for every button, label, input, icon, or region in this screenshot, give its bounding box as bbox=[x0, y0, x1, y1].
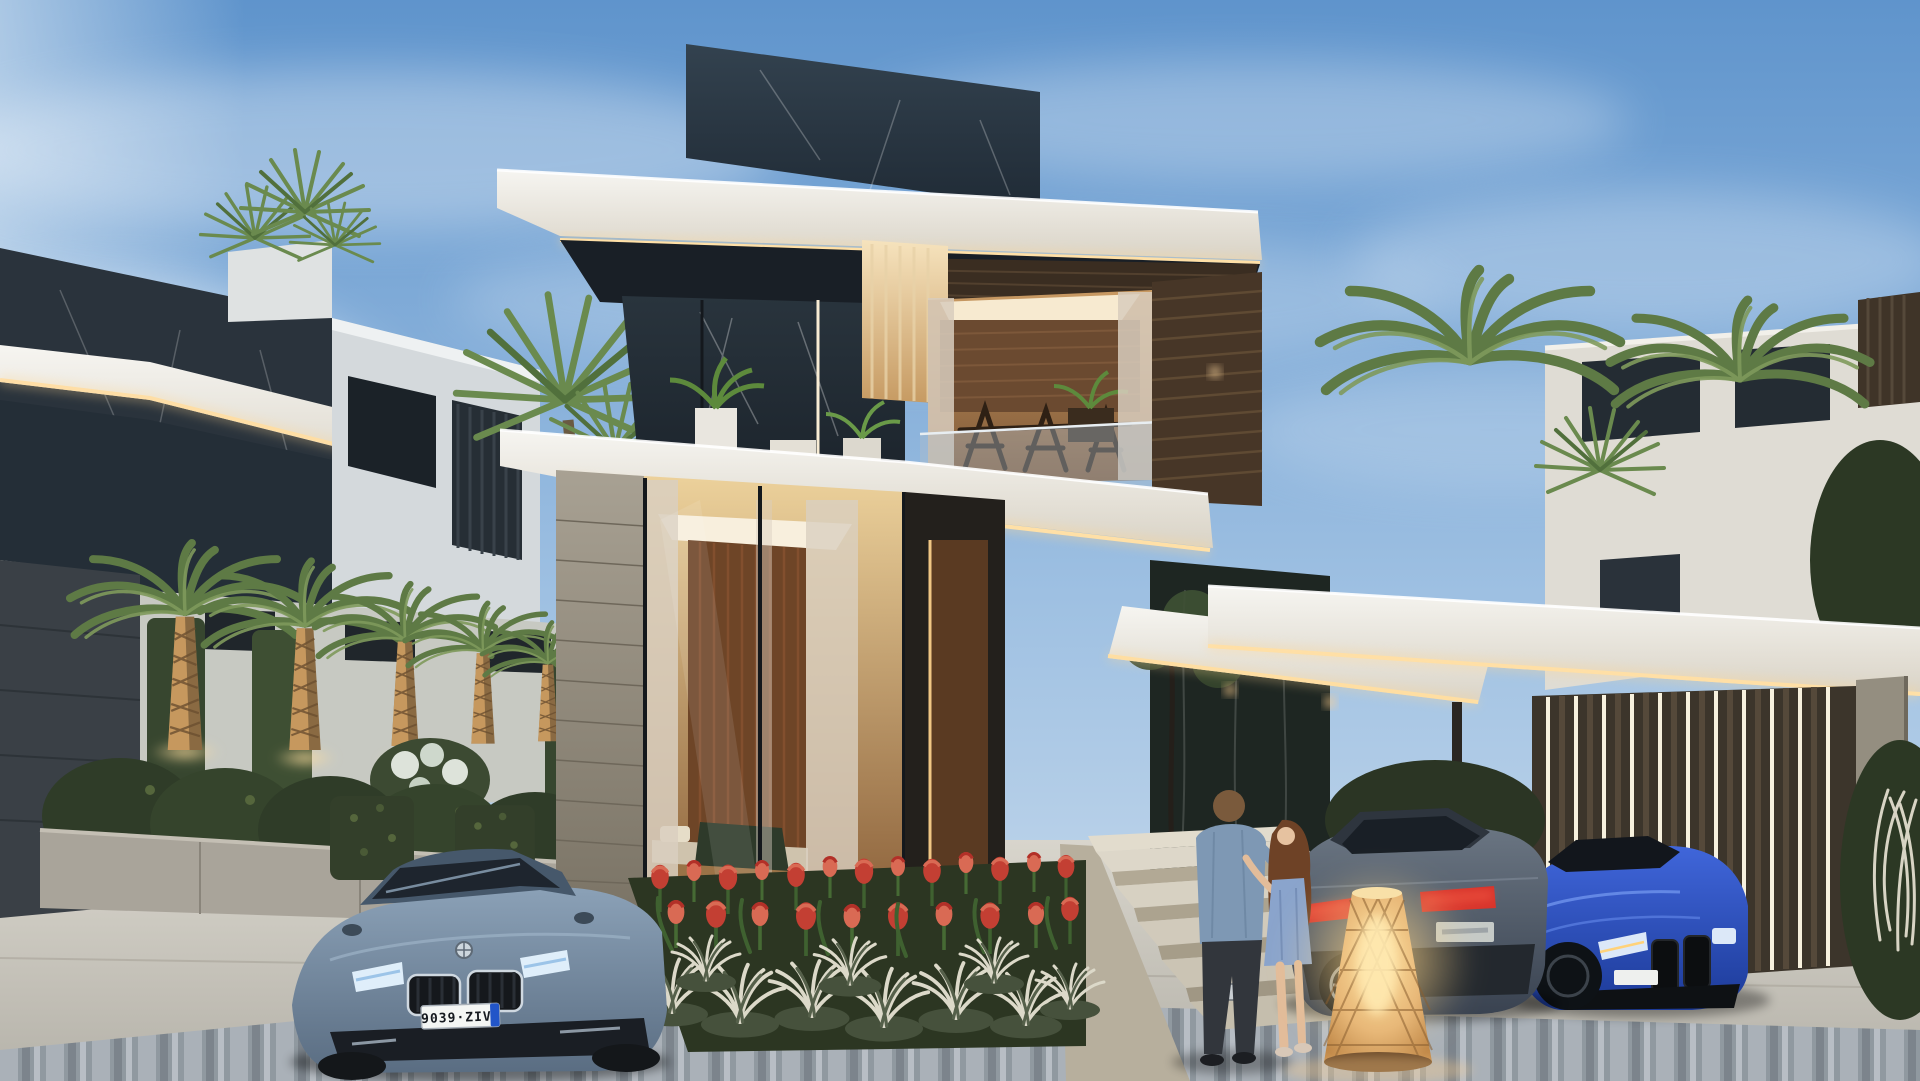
wall-sconce bbox=[1210, 367, 1220, 377]
woman-heel bbox=[1294, 1043, 1312, 1053]
man-head bbox=[1213, 790, 1245, 822]
side-mirror bbox=[342, 924, 362, 936]
sheer-curtain bbox=[806, 500, 858, 906]
lamp-top-opening bbox=[1352, 887, 1402, 899]
entry-door bbox=[930, 540, 988, 870]
license-plate-text: 9039·ZIV bbox=[421, 1010, 492, 1027]
man-shoe bbox=[1200, 1054, 1224, 1066]
license-plate: 9039·ZIV bbox=[421, 1003, 500, 1029]
flower-bed bbox=[628, 852, 1104, 1052]
woman-leg bbox=[1280, 966, 1284, 1046]
blank-plate bbox=[1614, 970, 1658, 985]
side-mirror bbox=[574, 912, 594, 924]
wood-slat-wall bbox=[1152, 272, 1262, 506]
villa-render-image: 9039·ZIV bbox=[0, 0, 1920, 1081]
wheel bbox=[592, 1044, 660, 1072]
woman-face bbox=[1277, 827, 1295, 845]
people-shadow bbox=[1172, 1050, 1292, 1074]
kidney-grille bbox=[1684, 936, 1710, 988]
woman-heel bbox=[1275, 1047, 1293, 1057]
headlight bbox=[1712, 928, 1736, 944]
canopy-downlight bbox=[1225, 685, 1235, 695]
lamp-inner-glow bbox=[1357, 915, 1397, 1015]
wheel bbox=[318, 1052, 386, 1080]
man-shoe bbox=[1232, 1052, 1256, 1064]
canopy-downlight bbox=[1325, 697, 1335, 707]
